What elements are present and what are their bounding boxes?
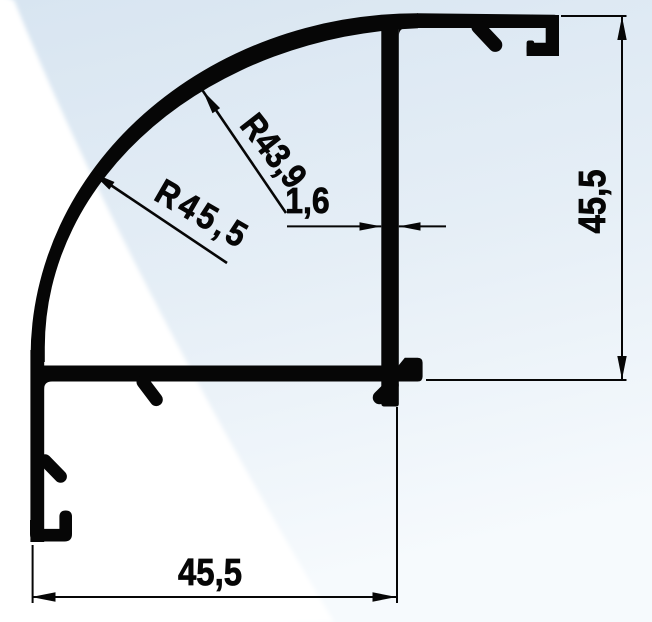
- svg-text:45,5: 45,5: [178, 552, 242, 594]
- svg-text:45,5: 45,5: [572, 169, 614, 233]
